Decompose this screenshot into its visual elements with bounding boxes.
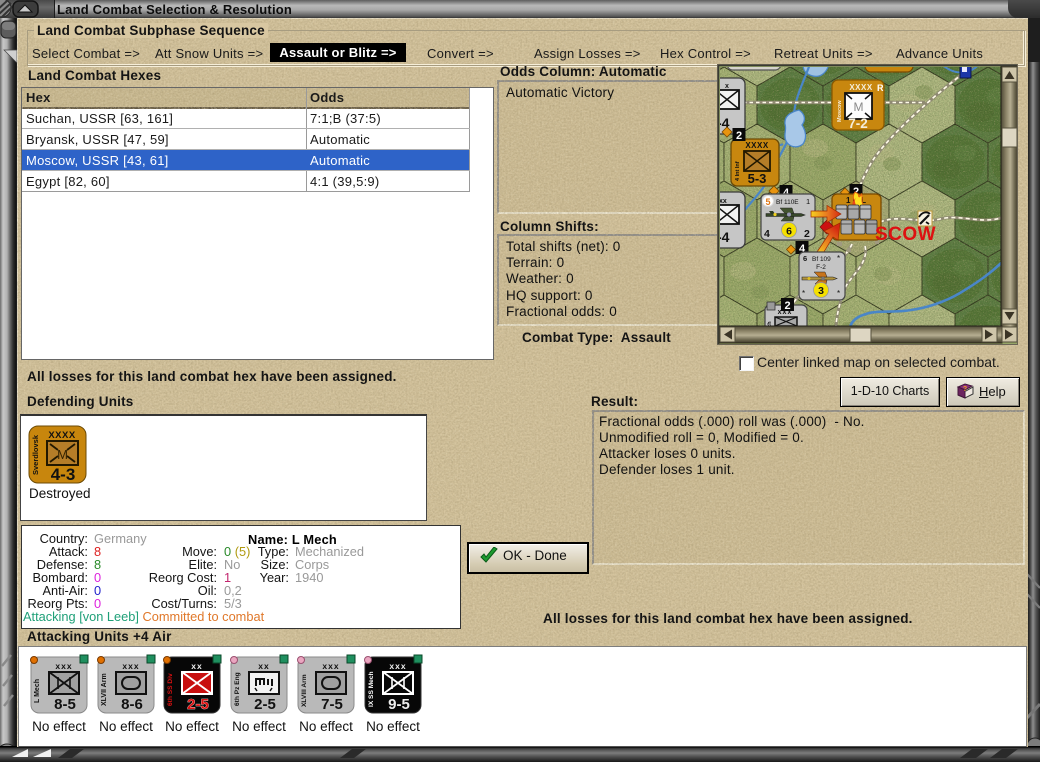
svg-text:2-5: 2-5 bbox=[187, 696, 209, 713]
svg-text:xxx: xxx bbox=[322, 661, 339, 671]
svg-text:Bf 109: Bf 109 bbox=[812, 256, 831, 263]
svg-text:2: 2 bbox=[784, 300, 790, 312]
svg-text:L Mech: L Mech bbox=[34, 679, 41, 703]
svg-text:2-5: 2-5 bbox=[254, 696, 276, 713]
svg-text:1: 1 bbox=[806, 197, 810, 206]
svg-text:4 Int Inf: 4 Int Inf bbox=[735, 161, 741, 181]
svg-text:IX SS Mech: IX SS Mech bbox=[368, 671, 375, 707]
svg-text:x: x bbox=[725, 83, 729, 90]
svg-text:*: * bbox=[837, 289, 840, 298]
svg-text:xx: xx bbox=[258, 661, 269, 671]
svg-text:XLVIII Arm: XLVIII Arm bbox=[301, 674, 308, 707]
svg-text:M: M bbox=[57, 447, 68, 462]
svg-text:*: * bbox=[837, 254, 840, 263]
svg-text:9-5: 9-5 bbox=[388, 696, 410, 713]
svg-text:2: 2 bbox=[736, 130, 742, 142]
svg-text:6: 6 bbox=[786, 226, 792, 238]
svg-text:5: 5 bbox=[765, 197, 770, 207]
svg-text:6th Pz Eng: 6th Pz Eng bbox=[234, 672, 241, 706]
svg-text:xxx: xxx bbox=[55, 661, 72, 671]
svg-text:7-2: 7-2 bbox=[848, 116, 868, 131]
svg-text:M: M bbox=[854, 100, 864, 114]
svg-text:XXXX: XXXX bbox=[745, 141, 769, 150]
svg-text:Moscow: Moscow bbox=[837, 100, 843, 122]
svg-text:4: 4 bbox=[764, 228, 770, 240]
svg-text:xxx: xxx bbox=[389, 661, 406, 671]
svg-text:4-3: 4-3 bbox=[51, 465, 76, 484]
svg-text:3: 3 bbox=[818, 285, 824, 297]
svg-text:8-5: 8-5 bbox=[54, 696, 76, 713]
svg-text:Sverdlovsk: Sverdlovsk bbox=[31, 434, 40, 475]
svg-text:R: R bbox=[877, 83, 884, 93]
svg-text:*: * bbox=[802, 289, 805, 298]
svg-text:xxx: xxx bbox=[122, 661, 139, 671]
svg-text:XXXX: XXXX bbox=[48, 430, 76, 441]
svg-text:Bf 110E: Bf 110E bbox=[776, 199, 799, 206]
svg-text:7-5: 7-5 bbox=[321, 696, 343, 713]
svg-text:xx: xx bbox=[191, 661, 202, 671]
svg-text:F-2: F-2 bbox=[816, 264, 826, 271]
svg-text:6th SS Div: 6th SS Div bbox=[167, 673, 174, 706]
svg-text:XLVII Arm: XLVII Arm bbox=[101, 673, 108, 706]
svg-text:XXXX: XXXX bbox=[849, 83, 873, 92]
svg-text:5-3: 5-3 bbox=[748, 171, 767, 186]
svg-text:8-6: 8-6 bbox=[121, 696, 143, 713]
svg-text:?: ? bbox=[963, 386, 967, 393]
svg-text:SCOW: SCOW bbox=[875, 224, 936, 245]
svg-text:6: 6 bbox=[803, 254, 807, 263]
svg-text:xx: xx bbox=[719, 198, 727, 205]
svg-text:2: 2 bbox=[804, 228, 810, 240]
